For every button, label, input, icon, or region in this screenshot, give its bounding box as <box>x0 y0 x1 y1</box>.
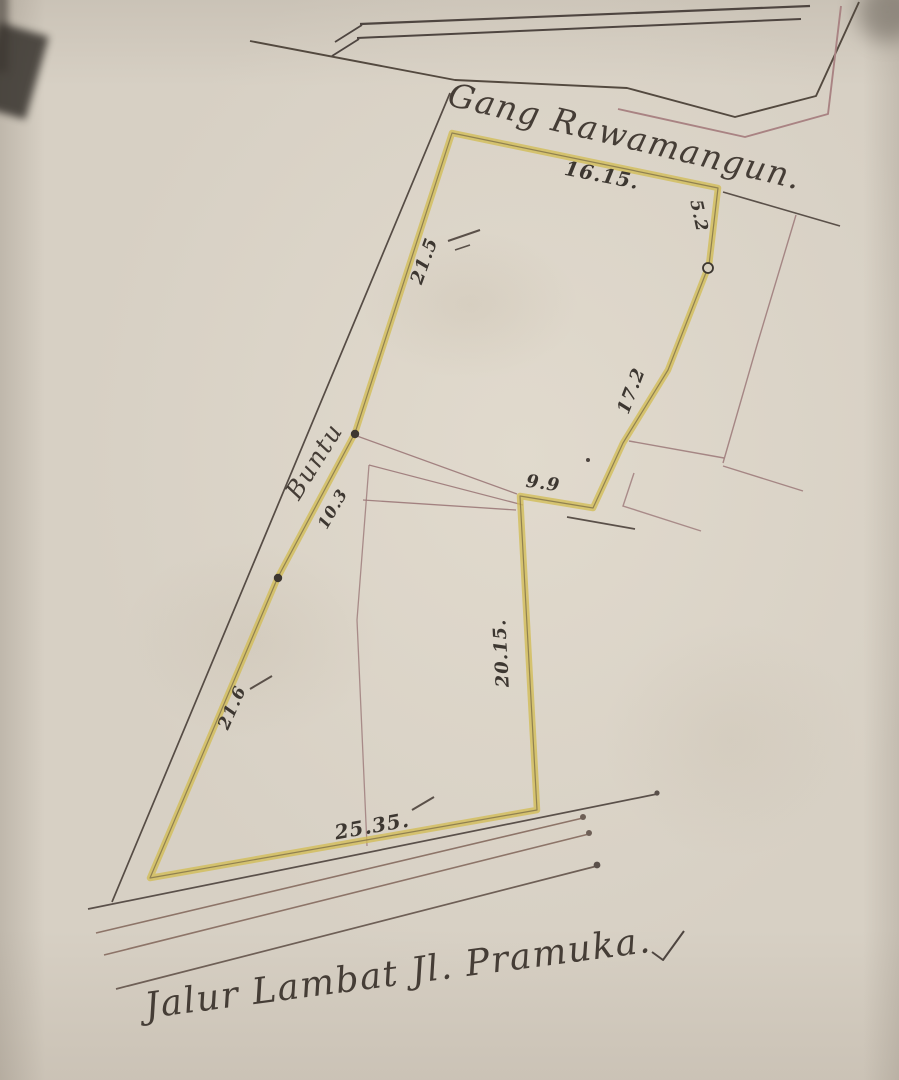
dim-5-2: 5.2 <box>686 198 709 233</box>
dim-20-15: 20.15. <box>491 618 513 687</box>
dim-9-9: 9.9 <box>525 473 561 496</box>
dim-16-15: 16.15. <box>563 158 641 192</box>
dim-21-5: 21.5 <box>408 235 441 286</box>
dim-21-6: 21.6 <box>216 684 250 732</box>
street-jalur-lambat: Jalur Lambat Jl. Pramuka. <box>143 923 654 1025</box>
dim-10-3: 10.3 <box>315 486 350 531</box>
map-labels: Gang Rawamangun.Jalur Lambat Jl. Pramuka… <box>0 0 899 1080</box>
survey-map-photo: Gang Rawamangun.Jalur Lambat Jl. Pramuka… <box>0 0 899 1080</box>
dim-17-2: 17.2 <box>615 365 649 416</box>
dim-25-35: 25.35. <box>333 810 411 843</box>
